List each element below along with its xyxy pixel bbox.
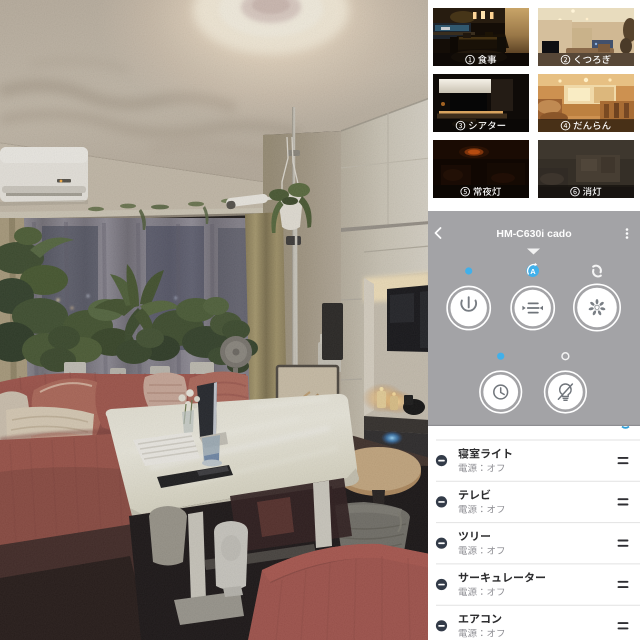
svg-text:A: A bbox=[530, 267, 536, 276]
svg-text:HM-C630i cado: HM-C630i cado bbox=[496, 228, 571, 240]
